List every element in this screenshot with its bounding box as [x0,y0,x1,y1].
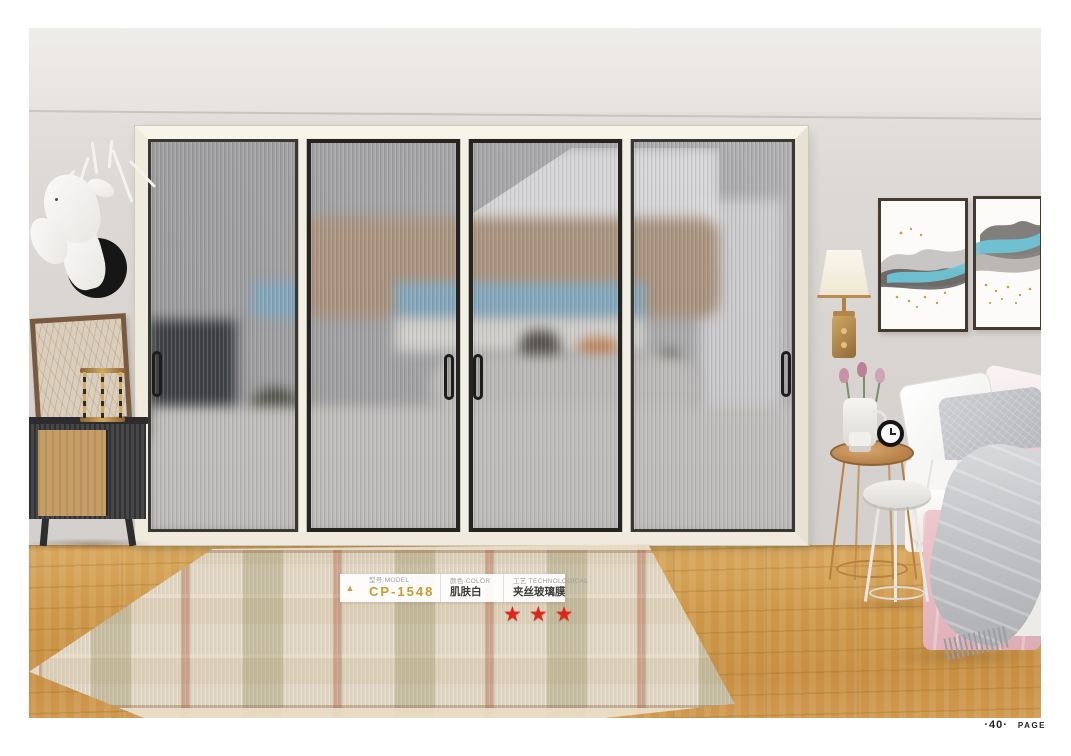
tulip-bloom [839,368,849,383]
sliding-glass-door [135,126,808,545]
tulip-stem [875,380,881,402]
stool-leg [912,500,929,601]
triangle-marker-icon: ▲ [340,574,360,602]
tulip-stem [863,376,865,398]
model-value: CP-1548 [369,585,440,599]
catalog-page: ▲ 型号 MODEL CP-1548 颜色 COLOR 肌肤白 工艺 TECHN… [0,0,1071,756]
page-number: ·40· PAGE [984,719,1046,731]
technique-label: 工艺 TECHNOLOGICAL [513,578,565,586]
hourglass-column [83,372,86,418]
hourglass-column [119,372,122,418]
color-label: 颜色 COLOR [450,578,503,586]
table-leg [829,460,846,579]
sconce-shade [819,250,869,296]
art-frame-right [973,196,1041,330]
hourglass-ornament [80,368,125,422]
tulip-bloom [875,368,885,383]
door-panel-2 [307,139,460,532]
art-frame-left [878,198,968,332]
door-mullion-1 [298,139,307,532]
antler-tine [112,149,134,203]
sideboard-cabinet [29,420,146,546]
door-panel-4 [631,139,795,532]
door-handle-right [781,351,791,397]
page-number-value: ·40· [984,719,1008,731]
ceiling [29,28,1041,112]
hourglass-column [101,372,104,418]
alarm-clock [877,420,904,447]
mountain-art-left [881,201,965,329]
mountain-art-right [976,199,1040,327]
sconce-knob [841,342,847,348]
door-handle-center-right [473,354,483,400]
tulip-bloom [857,362,867,377]
candle-jar [849,432,871,452]
color-column: 颜色 COLOR 肌肤白 [440,574,503,602]
product-info-bar: ▲ 型号 MODEL CP-1548 颜色 COLOR 肌肤白 工艺 TECHN… [340,574,565,602]
sconce-backplate [832,316,856,358]
rating-stars: ★★★ [503,602,580,627]
door-handle-left [152,351,162,397]
antler-tine [91,142,98,174]
door-mullion-3 [622,139,631,532]
model-column: 型号 MODEL CP-1548 [360,574,440,602]
sideboard-wood-door [38,430,106,516]
color-value: 肌肤白 [450,586,503,599]
stool-ring [869,586,925,600]
sconce-knob [841,328,847,334]
technique-column: 工艺 TECHNOLOGICAL 夹丝玻璃膜 [503,574,565,602]
door-mullion-2 [460,139,469,532]
sideboard-shadow [29,538,157,550]
sconce-stem [842,298,846,312]
door-track [148,139,795,532]
wall-sconce-lamp [818,250,872,372]
technique-value: 夹丝玻璃膜 [513,586,565,599]
antler-tine [129,160,156,188]
page-number-label: PAGE [1018,721,1046,730]
stool-leg [864,500,881,601]
white-stool [863,480,931,616]
clock-hand [890,433,896,435]
door-panel-1 [148,139,298,532]
room-photo: ▲ 型号 MODEL CP-1548 颜色 COLOR 肌肤白 工艺 TECHN… [29,28,1041,718]
stool-seat [863,480,931,508]
door-panel-3 [469,139,622,532]
deer-eye [55,198,58,201]
door-handle-center-left [444,354,454,400]
